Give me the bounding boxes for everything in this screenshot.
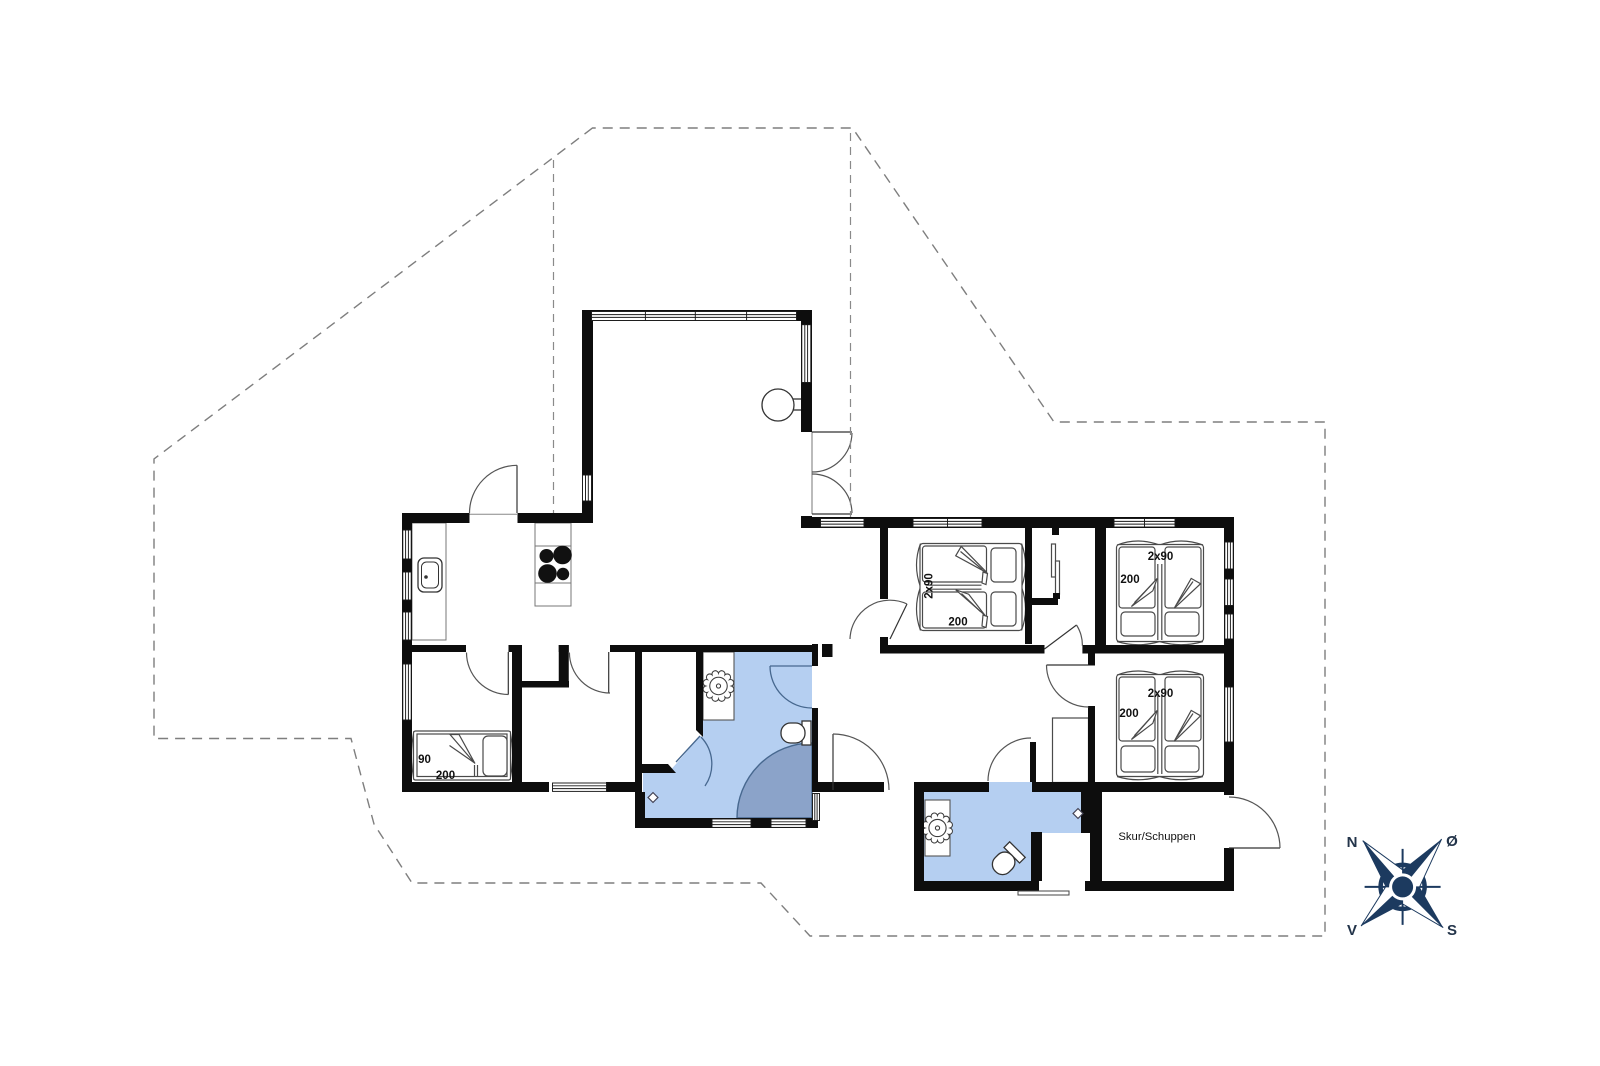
svg-text:200: 200 [1120, 574, 1139, 586]
svg-text:200: 200 [948, 617, 967, 629]
svg-text:200: 200 [436, 770, 455, 782]
svg-text:Ø: Ø [1446, 833, 1458, 850]
svg-text:Skur/Schuppen: Skur/Schuppen [1118, 831, 1195, 843]
svg-text:2x90: 2x90 [1148, 551, 1174, 563]
svg-text:2x90: 2x90 [1148, 688, 1174, 700]
svg-text:V: V [1347, 922, 1357, 939]
svg-text:S: S [1447, 922, 1457, 939]
svg-text:90: 90 [418, 754, 431, 766]
svg-text:200: 200 [1119, 708, 1138, 720]
svg-text:N: N [1347, 834, 1358, 851]
svg-text:2x90: 2x90 [924, 573, 936, 599]
